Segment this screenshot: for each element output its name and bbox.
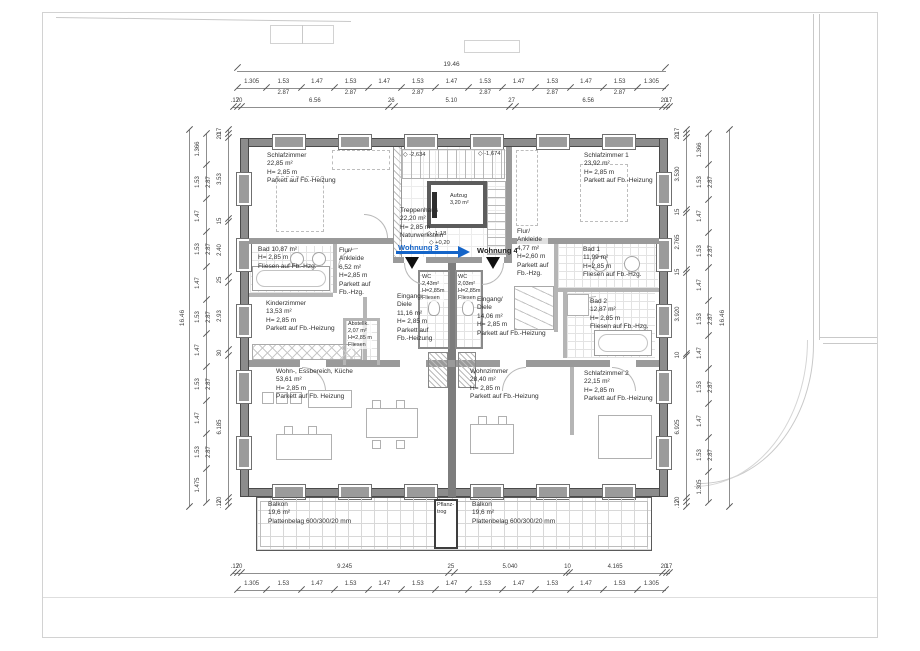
room-label-line: Fliesen auf Fb.-Hzg.: [583, 271, 642, 279]
dim-value: 5.040: [502, 564, 517, 570]
dim-value: 1.53: [697, 381, 703, 393]
room-label-line: Fliesen: [348, 342, 372, 349]
level-symbol: ◇: [429, 240, 433, 246]
room-label-wohn-essbereich: Wohn-, Essbereich, Küche53,61 m²H= 2,85 …: [276, 368, 353, 402]
room-label-schlafzimmer: Schlafzimmer22,85 m²H= 2,85 mParkett auf…: [267, 152, 336, 186]
dim-segment: .17: [678, 502, 694, 506]
dim-value: 2.87: [708, 313, 714, 325]
chair: [308, 426, 317, 435]
window: [236, 370, 252, 404]
window-glazing: [275, 487, 303, 497]
room-label-line: Kinderzimmer: [266, 300, 335, 308]
dim-value: 16.46: [179, 310, 186, 326]
dim-value: 1.475: [195, 478, 201, 493]
duct-shaft-left: [428, 352, 448, 388]
dim-value: 1.53: [697, 313, 703, 325]
room-label-line: Wohnzimmer: [470, 368, 539, 376]
room-label-line: Parkett auf Fb.-Heizung: [266, 325, 335, 333]
room-label-line: Parkett auf: [339, 281, 370, 289]
wohnung-arrow: [396, 251, 460, 254]
room-label-line: 22,85 m²: [267, 160, 336, 168]
room-label-line: Ankleide: [517, 236, 548, 244]
built-in-closet: [252, 344, 362, 360]
room-label-line: Parkett auf Fb.-Heizung: [584, 395, 653, 403]
dim-value: 1.53: [547, 79, 559, 85]
dim-value: 5.10: [446, 98, 458, 104]
dim-value: 1.53: [697, 177, 703, 189]
dim-right-inner: .17203.530152.765153.920106.92520.17: [678, 130, 694, 506]
window-glazing: [473, 487, 501, 497]
dim-value: 1.53: [278, 79, 290, 85]
window-glazing: [605, 137, 633, 147]
dim-segment: .17: [220, 502, 236, 506]
room-label-eingang-diele-r: Eingang/Diele14,06 m²H= 2,85 mParkett au…: [477, 296, 546, 338]
dim-segment: 1.305: [237, 582, 266, 598]
dim-value: 1.47: [195, 210, 201, 222]
dim-value: .17: [675, 500, 681, 508]
dim-segment: 6.185: [220, 356, 236, 497]
room-label-line: Parkett auf Fb.-Heizung: [477, 330, 546, 338]
dim-value: 3.530: [675, 166, 681, 181]
dim-segment: 1.532.87: [198, 232, 214, 266]
room-label-line: 14,06 m²: [477, 313, 546, 321]
room-label-line: Fliesen auf Fb.-Hzg.: [258, 263, 317, 271]
window-glazing: [539, 487, 567, 497]
dim-value: 6.56: [582, 98, 594, 104]
room-label-line: Fb.-Heizung: [397, 335, 432, 343]
room-label-line: 11,16 m²: [397, 310, 432, 318]
dim-value: 1.53: [479, 79, 491, 85]
dim-segment: 1.53: [266, 582, 300, 598]
room-label-line: 28,40 m²: [470, 376, 539, 384]
room-label-line: H= 2,85 m: [400, 224, 443, 232]
level-value: +0,20: [435, 240, 450, 246]
room-label-line: WC: [458, 274, 480, 281]
dim-right-chain: 1.3661.532.871.471.532.871.471.532.871.4…: [700, 134, 716, 502]
dim-segment: .17: [666, 99, 670, 115]
dim-value: 1.47: [195, 345, 201, 357]
dim-value: 2.87: [614, 90, 626, 96]
dim-segment: 1.53: [468, 582, 502, 598]
dim-value: 2.87: [708, 177, 714, 189]
dim-value: 2.87: [206, 446, 212, 458]
room-label-wohnzimmer: Wohnzimmer28,40 m²H= 2,85 mParkett auf F…: [470, 368, 539, 402]
wardrobe: [516, 150, 538, 226]
dim-segment: 1.532.87: [334, 80, 368, 96]
dim-top-total: 19.46: [237, 62, 666, 76]
room-label-line: Flur/: [517, 228, 548, 236]
dim-value: 1.305: [644, 581, 659, 587]
room-label-treppenhaus: Treppenhaus22,20 m²H= 2,85 mNaturwerkste…: [400, 207, 443, 241]
room-label-line: H=2,85 m: [348, 335, 372, 342]
window: [236, 304, 252, 338]
dim-segment: 6.56: [241, 99, 388, 115]
room-label-line: H= 2,85 m: [470, 385, 539, 393]
dim-top-inner: .17206.56265.10276.5620.17: [233, 99, 670, 115]
window: [656, 370, 672, 404]
dim-bottom-inner: .17209.245255.040104.16520.17: [233, 565, 670, 581]
room-label-line: Balkon: [472, 501, 555, 509]
dim-value: 9.245: [337, 564, 352, 570]
dim-value: 1.53: [547, 581, 559, 587]
dim-value: 1.53: [195, 311, 201, 323]
dim-left-inner: .17203.53152.40252.93306.18520.17: [220, 130, 236, 506]
room-label-line: 12,87 m²: [590, 306, 649, 314]
room-label-line: H= 2,85 m: [397, 318, 432, 326]
dim-segment: 1.305: [237, 80, 266, 96]
room-label-line: 23,92 m²: [584, 160, 653, 168]
dim-value: 1.47: [697, 347, 703, 359]
dim-value: 1.53: [195, 243, 201, 255]
bed: [598, 415, 652, 459]
dim-segment: 1.47: [700, 268, 716, 301]
dim-segment: 3.530: [678, 138, 694, 211]
window: [602, 134, 636, 150]
dim-value: 1.47: [311, 581, 323, 587]
room-label-bad2: Bad 212,87 m²H= 2,85 mFliesen auf Fb.-Hz…: [590, 298, 649, 332]
window-glazing: [239, 175, 249, 203]
room-label-line: 2,07 m²: [348, 328, 372, 335]
dim-segment: 2.93: [220, 283, 236, 350]
dim-segment: 1.47: [570, 582, 603, 598]
dim-value: 1.47: [697, 211, 703, 223]
room-label-line: Parkett auf Fb.-Heizung: [267, 177, 336, 185]
room-label-aufzug: Aufzug3,20 m²: [450, 193, 469, 207]
dim-value: 2.87: [708, 381, 714, 393]
room-label-line: Schlafzimmer 2: [584, 370, 653, 378]
floor-plan-sheet: Wohnung 3 Wohnung 4 ◇ -2,634 ◇ -1,674 ◇ …: [0, 0, 920, 651]
dim-value: 3.920: [675, 306, 681, 321]
dim-segment: 1.532.87: [198, 434, 214, 468]
room-label-line: Plattenbelag 600/300/20 mm: [268, 518, 351, 526]
window-glazing: [605, 487, 633, 497]
room-label-line: Parkett auf: [517, 262, 548, 270]
dim-segment: 1.305: [637, 582, 666, 598]
dim-segment: 1.532.87: [700, 165, 716, 200]
room-label-line: Balkon: [268, 501, 351, 509]
window-glazing: [659, 307, 669, 335]
abstellkammer-wall-right: [377, 318, 380, 365]
dim-segment: 1.366: [198, 134, 214, 165]
room-label-line: 11,99 m²: [583, 254, 642, 262]
door-opening: [610, 360, 636, 367]
room-label-line: H=2,85 m: [339, 272, 370, 280]
room-label-kinderzimmer: Kinderzimmer13,53 m²H= 2,85 mParkett auf…: [266, 300, 335, 334]
window: [338, 134, 372, 150]
dim-value: 1.53: [345, 581, 357, 587]
dim-value: 1.53: [195, 176, 201, 188]
level-value: -1,674: [484, 151, 500, 157]
dim-segment: 1.47: [700, 336, 716, 369]
dim-segment: 1.47: [198, 267, 214, 300]
window: [236, 436, 252, 470]
dim-value: 2.87: [278, 90, 290, 96]
stair-flight-side: [487, 181, 506, 255]
room-label-flur-ankleide-r: Flur/Ankleide4,77 m²H=2,60 mParkett aufF…: [517, 228, 548, 279]
dim-segment: 1.305: [637, 80, 666, 96]
dim-value: 1.53: [479, 581, 491, 587]
window-glazing: [341, 487, 369, 497]
dim-value: 1.47: [378, 581, 390, 587]
window: [656, 436, 672, 470]
room-label-line: Ankleide: [339, 255, 370, 263]
table: [470, 424, 514, 454]
dim-segment: 1.53: [334, 582, 368, 598]
room-label-line: Fliesen: [422, 295, 444, 302]
room-label-line: Parkett auf Fb.-Heizung: [584, 177, 653, 185]
room-label-abstellkammer: Abstellk.2,07 m²H=2,85 mFliesen: [348, 321, 372, 349]
wohnung4-label: Wohnung 4: [477, 246, 518, 255]
dim-segment: 1.47: [435, 582, 468, 598]
dim-segment: 6.56: [515, 99, 662, 115]
room-label-line: H= 2,85 m: [584, 169, 653, 177]
room-label-line: 19,6 m²: [472, 509, 555, 517]
room-label-line: 2,03m²: [458, 281, 480, 288]
dim-value: 4.165: [608, 564, 623, 570]
dim-value: 19.46: [443, 61, 459, 68]
window: [536, 134, 570, 150]
room-label-line: Wohn-, Essbereich, Küche: [276, 368, 353, 376]
window-glazing: [341, 137, 369, 147]
wall-wohnzimmer-schlafzimmer2: [570, 367, 574, 435]
dim-segment: 1.47: [301, 582, 334, 598]
window-glazing: [239, 307, 249, 335]
dim-value: 6.185: [217, 420, 223, 435]
room-label-line: 22,15 m²: [584, 378, 653, 386]
window-glazing: [659, 439, 669, 467]
room-label-line: Fliesen auf Fb.-Hzg.: [590, 323, 649, 331]
room-label-line: Abstellk.: [348, 321, 372, 328]
room-label-line: 6,52 m²: [339, 264, 370, 272]
chair: [396, 400, 405, 409]
dim-segment: 1.47: [700, 200, 716, 233]
dim-value: 1.47: [311, 79, 323, 85]
level-value: -2,634: [409, 152, 425, 158]
window: [656, 172, 672, 206]
door-opening: [400, 360, 426, 367]
dim-value: 1.53: [195, 378, 201, 390]
window-glazing: [407, 137, 435, 147]
dim-segment: 1.47: [435, 80, 468, 96]
room-label-line: H= 2,85 m: [584, 387, 653, 395]
dim-value: 6.56: [309, 98, 321, 104]
dim-value: 1.47: [697, 415, 703, 427]
room-label-line: Treppenhaus: [400, 207, 443, 215]
dim-segment: 9.245: [241, 565, 448, 581]
dim-segment: 1.47: [502, 80, 535, 96]
window-glazing: [275, 137, 303, 147]
building: Wohnung 3 Wohnung 4 ◇ -2,634 ◇ -1,674 ◇ …: [0, 0, 920, 651]
dim-right-total: 16.46: [722, 130, 736, 506]
room-label-flur-ankleide-l: Flur/Ankleide6,52 m²H=2,85 mParkett aufF…: [339, 247, 370, 298]
room-label-line: Schlafzimmer 1: [584, 152, 653, 160]
room-label-line: Naturwerkstein: [400, 232, 443, 240]
dim-value: 1.53: [697, 449, 703, 461]
room-label-line: H=2,85m: [458, 288, 480, 295]
dim-value: 1.53: [412, 79, 424, 85]
room-label-line: H=2,85m: [422, 288, 444, 295]
room-label-line: Diele: [397, 301, 432, 309]
room-label-line: Bad 1: [583, 246, 642, 254]
room-label-line: H= 2,85 m: [266, 317, 335, 325]
level-mark: ◇ +0,20: [429, 240, 450, 246]
dim-segment: 6.925: [678, 356, 694, 498]
dim-value: 3.53: [217, 173, 223, 185]
dim-value: 2.87: [708, 245, 714, 257]
dim-value: 1.47: [446, 79, 458, 85]
dim-value: 2.87: [547, 90, 559, 96]
dim-segment: 1.53: [401, 582, 435, 598]
dim-value: 1.47: [580, 79, 592, 85]
dim-value: 1.47: [195, 277, 201, 289]
room-label-line: H= 2,85 m: [590, 315, 649, 323]
dim-segment: 1.47: [368, 582, 401, 598]
dim-value: 1.47: [195, 412, 201, 424]
dim-value: 2.765: [675, 234, 681, 249]
dim-value: 1.53: [345, 79, 357, 85]
door-opening: [300, 360, 326, 367]
dim-segment: 1.532.87: [535, 80, 569, 96]
dim-segment: 5.040: [454, 565, 567, 581]
dim-segment: 1.532.87: [266, 80, 300, 96]
dim-segment: .17: [666, 565, 670, 581]
shower: [567, 294, 589, 316]
window-glazing: [239, 241, 249, 269]
dim-value: 2.87: [206, 378, 212, 390]
dim-segment: 1.532.87: [700, 369, 716, 404]
room-label-line: Bad 2: [590, 298, 649, 306]
window: [404, 134, 438, 150]
sofa-table: [276, 434, 332, 460]
room-label-line: H= 2,85 m: [276, 385, 353, 393]
dim-segment: 1.53: [535, 582, 569, 598]
dim-value: 1.366: [697, 142, 703, 157]
chair: [478, 416, 487, 425]
room-label-line: Parkett auf: [397, 327, 432, 335]
entrance-marker-wohnung4: [486, 257, 500, 269]
dim-segment: 1.47: [198, 199, 214, 232]
room-label-line: 3,20 m²: [450, 200, 469, 207]
dim-segment: 1.47: [502, 582, 535, 598]
dim-segment: 1.532.87: [700, 438, 716, 473]
dim-value: 2.87: [479, 90, 491, 96]
window-glazing: [473, 137, 501, 147]
dim-segment: 1.305: [700, 472, 716, 502]
wall-bad1-bottom: [558, 288, 659, 292]
window-glazing: [239, 373, 249, 401]
bathtub: [594, 330, 652, 356]
window: [470, 134, 504, 150]
dim-segment: 1.47: [198, 401, 214, 434]
dim-value: 1.305: [244, 581, 259, 587]
window-glazing: [239, 439, 249, 467]
dim-segment: 5.10: [394, 99, 508, 115]
level-mark: ◇ -1,674: [478, 151, 501, 157]
window-glazing: [659, 175, 669, 203]
dim-segment: 1.53: [603, 582, 637, 598]
dim-value: 2.87: [345, 90, 357, 96]
wall-bad-bottom: [249, 293, 333, 297]
dim-value: .17: [217, 500, 223, 508]
room-label-line: H=2,85 m: [583, 263, 642, 271]
wardrobe: [332, 150, 390, 170]
room-label-line: Plattenbelag 600/300/20 mm: [472, 518, 555, 526]
wall-bad-flur: [333, 244, 337, 293]
toilet: [462, 300, 474, 316]
dim-left-chain: 1.3661.532.871.471.532.871.471.532.871.4…: [198, 134, 214, 502]
room-label-line: H= 2,85 m: [477, 321, 546, 329]
dim-value: 1.366: [195, 142, 201, 157]
room-label-line: 13,53 m²: [266, 308, 335, 316]
dim-segment: 1.47: [301, 80, 334, 96]
dim-segment: 1.532.87: [468, 80, 502, 96]
dim-segment: 1.532.87: [401, 80, 435, 96]
room-label-line: Parkett auf Fb.-Heizung: [470, 393, 539, 401]
dim-value: 1.53: [614, 581, 626, 587]
dim-segment: 1.47: [198, 334, 214, 367]
room-label-line: Fb.-Hzg.: [517, 270, 548, 278]
window-glazing: [407, 487, 435, 497]
room-label-line: 19,6 m²: [268, 509, 351, 517]
chair: [372, 440, 381, 449]
room-label-bad: Bad 10,87 m²H= 2,85 mFliesen auf Fb.-Hzg…: [258, 246, 317, 271]
dim-segment: 1.47: [700, 404, 716, 437]
window-glazing: [659, 241, 669, 269]
dim-segment: 1.47: [570, 80, 603, 96]
level-symbol: ◇: [403, 152, 407, 158]
room-label-line: 4,77 m²: [517, 245, 548, 253]
dim-value: 1.53: [412, 581, 424, 587]
dim-segment: 1.366: [700, 134, 716, 165]
dining-table: [366, 408, 418, 438]
dim-segment: 3.920: [678, 273, 694, 354]
room-label-line: H= 2,85 m: [258, 254, 317, 262]
room-label-balkon-right: Balkon19,6 m²Plattenbelag 600/300/20 mm: [472, 501, 555, 526]
room-label-schlafzimmer2: Schlafzimmer 222,15 m²H= 2,85 mParkett a…: [584, 370, 653, 404]
dim-segment: 3.53: [220, 138, 236, 219]
entrance-marker-wohnung3: [405, 257, 419, 269]
room-label-bad1: Bad 111,99 m²H=2,85 mFliesen auf Fb.-Hzg…: [583, 246, 642, 280]
room-label-pflanztrog: Pflanz-trog: [437, 502, 454, 516]
room-label-line: 53,61 m²: [276, 376, 353, 384]
room-label-line: Parkett auf Fb. Heizung: [276, 393, 353, 401]
kitchen-counter: [262, 392, 274, 404]
window: [656, 304, 672, 338]
dim-segment: 1.532.87: [700, 301, 716, 336]
dim-segment: 1.475: [198, 469, 214, 502]
dim-value: 2.93: [217, 310, 223, 322]
room-label-balkon-left: Balkon19,6 m²Plattenbelag 600/300/20 mm: [268, 501, 351, 526]
dim-left-total: 16.46: [182, 130, 196, 506]
room-label-line: Diele: [477, 304, 546, 312]
dim-value: 2.87: [206, 176, 212, 188]
window: [236, 172, 252, 206]
dim-segment: 1.47: [368, 80, 401, 96]
dim-value: 1.47: [513, 581, 525, 587]
dim-value: 1.53: [697, 245, 703, 257]
dim-value: 1.53: [195, 446, 201, 458]
dim-value: 2.87: [206, 311, 212, 323]
room-label-line: 2,43m²: [422, 281, 444, 288]
dim-value: 2.40: [217, 244, 223, 256]
dim-segment: 2.40: [220, 222, 236, 277]
room-label-line: Flur/: [339, 247, 370, 255]
chair: [498, 416, 507, 425]
dim-value: 6.925: [675, 420, 681, 435]
dim-segment: 1.532.87: [198, 367, 214, 401]
dim-value: 1.305: [644, 79, 659, 85]
room-label-line: Fb.-Hzg.: [339, 289, 370, 297]
